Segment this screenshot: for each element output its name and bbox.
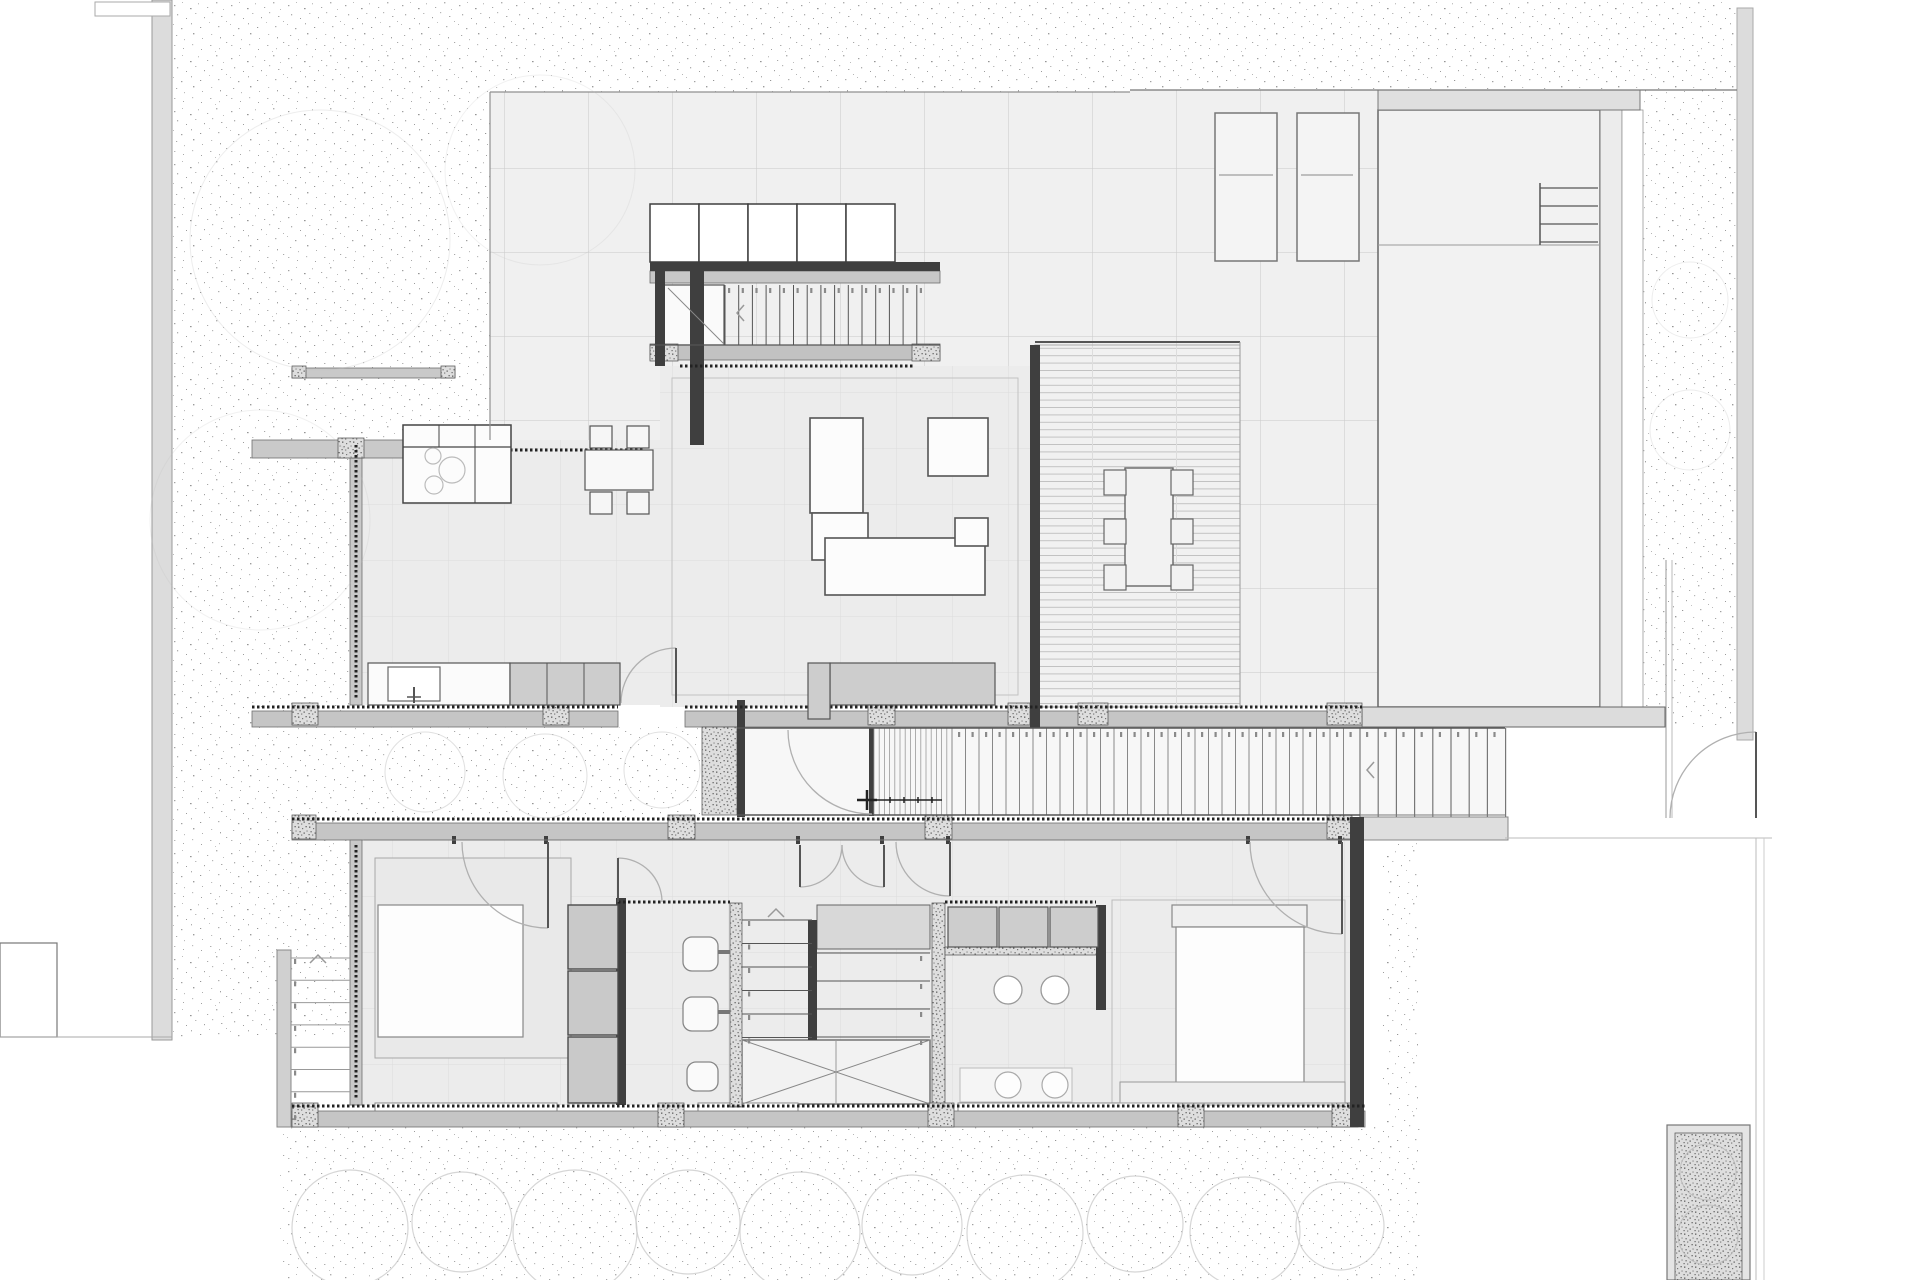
cap [912, 344, 940, 361]
pool-coping [1378, 90, 1640, 110]
pergola-tile-4 [797, 204, 846, 262]
pool-walk-strip [1622, 110, 1643, 707]
walkway-step-numbers-tick [1201, 732, 1203, 737]
basin [1042, 1072, 1068, 1098]
walkway-step-numbers-tick [1080, 732, 1082, 737]
flight-b-numbers-tick [920, 984, 922, 989]
sun-lounger [1297, 113, 1359, 261]
upper-stair-numbers-tick [892, 288, 894, 293]
walkway-door-leaf [869, 728, 874, 816]
walkway-step-numbers-tick [1269, 732, 1271, 737]
ext-stair-numbers-tick [294, 981, 296, 986]
pool-water [1378, 110, 1600, 707]
walkway-step-numbers-tick [1161, 732, 1163, 737]
wardrobe-cell [568, 1037, 618, 1103]
cap [338, 438, 364, 458]
wc-fixture [683, 937, 718, 971]
walkway-step-numbers-tick [1026, 732, 1028, 737]
walkway-step-numbers-tick [985, 732, 987, 737]
dining-chair [627, 492, 649, 514]
outdoor-chair [1171, 565, 1193, 590]
outdoor-chair [1104, 470, 1126, 495]
ground-topright [1130, 0, 1737, 90]
kitchen-island [403, 425, 511, 503]
flight-b-numbers-tick [920, 1040, 922, 1045]
shower-fixture [687, 1062, 718, 1091]
upper-stair-numbers-tick [810, 288, 812, 293]
dining-chair [590, 426, 612, 448]
upper-stair-numbers-tick [797, 288, 799, 293]
sofa-module [955, 518, 988, 546]
upper-stair-numbers [728, 288, 922, 293]
basin [994, 976, 1022, 1004]
sofa-module [810, 418, 863, 513]
site-notch-topleft [95, 2, 170, 16]
walkway-step-numbers-tick [1120, 732, 1122, 737]
stair-landing-lower [817, 905, 930, 949]
bedroom-north-band [292, 823, 1352, 840]
sofa-module [928, 418, 988, 476]
flight-a-numbers-tick [748, 921, 750, 926]
walkway-step-numbers-tick [1039, 732, 1041, 737]
pergola-tile-1 [650, 204, 699, 262]
planting-strip-east [1382, 843, 1418, 1127]
dining-chair [590, 492, 612, 514]
entry-step-numbers-tick [1421, 732, 1423, 737]
flight-b-numbers-tick [920, 1012, 922, 1017]
stair-wall-right [932, 903, 945, 1107]
walkway-step-numbers-tick [1174, 732, 1176, 737]
walkway-step-numbers-tick [1296, 732, 1298, 737]
walkway-step-numbers-tick [1282, 732, 1284, 737]
upper-stair-numbers-tick [879, 288, 881, 293]
flight-a-numbers-tick [748, 1015, 750, 1020]
ext-stair-numbers-tick [294, 1093, 296, 1098]
floor-plan-canvas [0, 0, 1920, 1280]
walkway-step-numbers-tick [1107, 732, 1109, 737]
pool-south-band [1362, 707, 1665, 727]
ext-stair-numbers-tick [294, 1071, 296, 1076]
vanity-cabinet [999, 907, 1048, 947]
partition-stairs-mid [808, 920, 817, 1040]
entry-step-numbers-tick [1384, 732, 1386, 737]
entry-step-numbers-tick [1457, 732, 1459, 737]
ground-above-terrace [490, 0, 1130, 92]
upper-stair-numbers-tick [783, 288, 785, 293]
ground-topleft [172, 0, 350, 1040]
site-wall-left [152, 0, 172, 1040]
vanity-cabinet [948, 907, 997, 947]
wardrobe-cell [568, 905, 618, 969]
pool-wall-double [1600, 110, 1622, 707]
upper-stair-numbers-tick [755, 288, 757, 293]
outdoor-chair [1104, 565, 1126, 590]
pergola-tile-5 [846, 204, 895, 262]
walkway-step-numbers-tick [1066, 732, 1068, 737]
wardrobe-cell [568, 971, 618, 1035]
upper-stair-numbers-tick [906, 288, 908, 293]
walkway-step-numbers-tick [1309, 732, 1311, 737]
sun-lounger [1215, 113, 1277, 261]
upper-stair-numbers-tick [851, 288, 853, 293]
walkway-floor [737, 727, 1505, 815]
entry-step-numbers-tick [1475, 732, 1477, 737]
kitchen-cabinets [510, 663, 620, 705]
basin [995, 1072, 1021, 1098]
pergola-tile-3 [748, 204, 797, 262]
flight-a-numbers-tick [748, 968, 750, 973]
dining-table [585, 450, 653, 490]
upper-stair-numbers-tick [728, 288, 730, 293]
living-west-wall [690, 262, 704, 445]
entry-step-numbers-tick [1366, 732, 1368, 737]
ext-stair-numbers-tick [294, 1048, 296, 1053]
vanity-cabinet [1050, 907, 1098, 947]
upper-stair-numbers-tick [838, 288, 840, 293]
walkway-step-numbers-tick [1350, 732, 1352, 737]
upper-stair-numbers-tick [742, 288, 744, 293]
ext-stair-numbers-tick [294, 1004, 296, 1009]
bed1-mattress [378, 905, 523, 1037]
bedroom-east-wall [1350, 817, 1364, 1127]
walkway-step-numbers-tick [1323, 732, 1325, 737]
hall-cabinet-return [808, 663, 830, 719]
floor-plan-page [0, 0, 1920, 1280]
walkway-step-numbers-tick [958, 732, 960, 737]
bed2-bench [1120, 1082, 1345, 1103]
cap [658, 1103, 684, 1127]
pergola-tile-2 [699, 204, 748, 262]
hall-pier [737, 700, 745, 817]
walkway-step-numbers-tick [999, 732, 1001, 737]
neighbor-structure [0, 943, 57, 1037]
upper-stair-numbers-tick [824, 288, 826, 293]
walkway-step-numbers-tick [1215, 732, 1217, 737]
flight-a-numbers-tick [748, 1039, 750, 1044]
kitchen-north-band [252, 440, 405, 458]
outdoor-chair [1171, 470, 1193, 495]
ext-stair-numbers-tick [294, 1026, 296, 1031]
planter-bed [1675, 1133, 1742, 1280]
flight-a-numbers-tick [748, 992, 750, 997]
bidet-fixture [683, 997, 718, 1031]
hall-cabinet [830, 663, 995, 705]
flight-b-numbers-tick [920, 956, 922, 961]
stair-block-west-wall [655, 262, 665, 366]
cap [543, 703, 569, 725]
entry-step-numbers-tick [1493, 732, 1495, 737]
walkway-step-numbers-tick [1147, 732, 1149, 737]
cap [928, 1103, 954, 1127]
walkway-step-numbers-tick [1228, 732, 1230, 737]
dining-chair [627, 426, 649, 448]
entry-step-numbers-tick [1439, 732, 1441, 737]
entry-step-numbers-tick [1402, 732, 1404, 737]
walkway-step-numbers-tick [1093, 732, 1095, 737]
basin [1041, 976, 1069, 1004]
wall-pier-garden [702, 727, 737, 815]
flight-a-numbers-tick [748, 945, 750, 950]
ext-stair-numbers-tick [294, 1115, 296, 1120]
ext-stair-numbers-tick [294, 959, 296, 964]
outdoor-chair [1104, 519, 1126, 544]
upper-stair-numbers-tick [920, 288, 922, 293]
outdoor-table [1125, 468, 1173, 586]
walkway-step-numbers-tick [1188, 732, 1190, 737]
upper-stair-numbers-tick [865, 288, 867, 293]
upper-stair-numbers-tick [769, 288, 771, 293]
walkway-step-numbers-tick [1242, 732, 1244, 737]
walkway-step-numbers-tick [1336, 732, 1338, 737]
bed2-mattress [1176, 927, 1304, 1103]
vanity-dotted-wall [945, 947, 1100, 955]
walkway-step-numbers-tick [972, 732, 974, 737]
ext-stair-rail [277, 950, 291, 1127]
entry-landing-east [1360, 817, 1508, 840]
walkway-step-numbers-tick [1134, 732, 1136, 737]
ground-right-of-pool [1643, 90, 1737, 727]
stair-wall-left [730, 903, 742, 1107]
walkway-step-numbers-tick [1053, 732, 1055, 737]
walkway-step-numbers-tick [1012, 732, 1014, 737]
outdoor-chair [1171, 519, 1193, 544]
cap [441, 366, 455, 378]
walkway-step-numbers-tick [1255, 732, 1257, 737]
site-wall-right [1737, 8, 1753, 740]
living-east-wall [1030, 345, 1040, 728]
garden-south [280, 1127, 1420, 1280]
cap [1178, 1103, 1204, 1127]
